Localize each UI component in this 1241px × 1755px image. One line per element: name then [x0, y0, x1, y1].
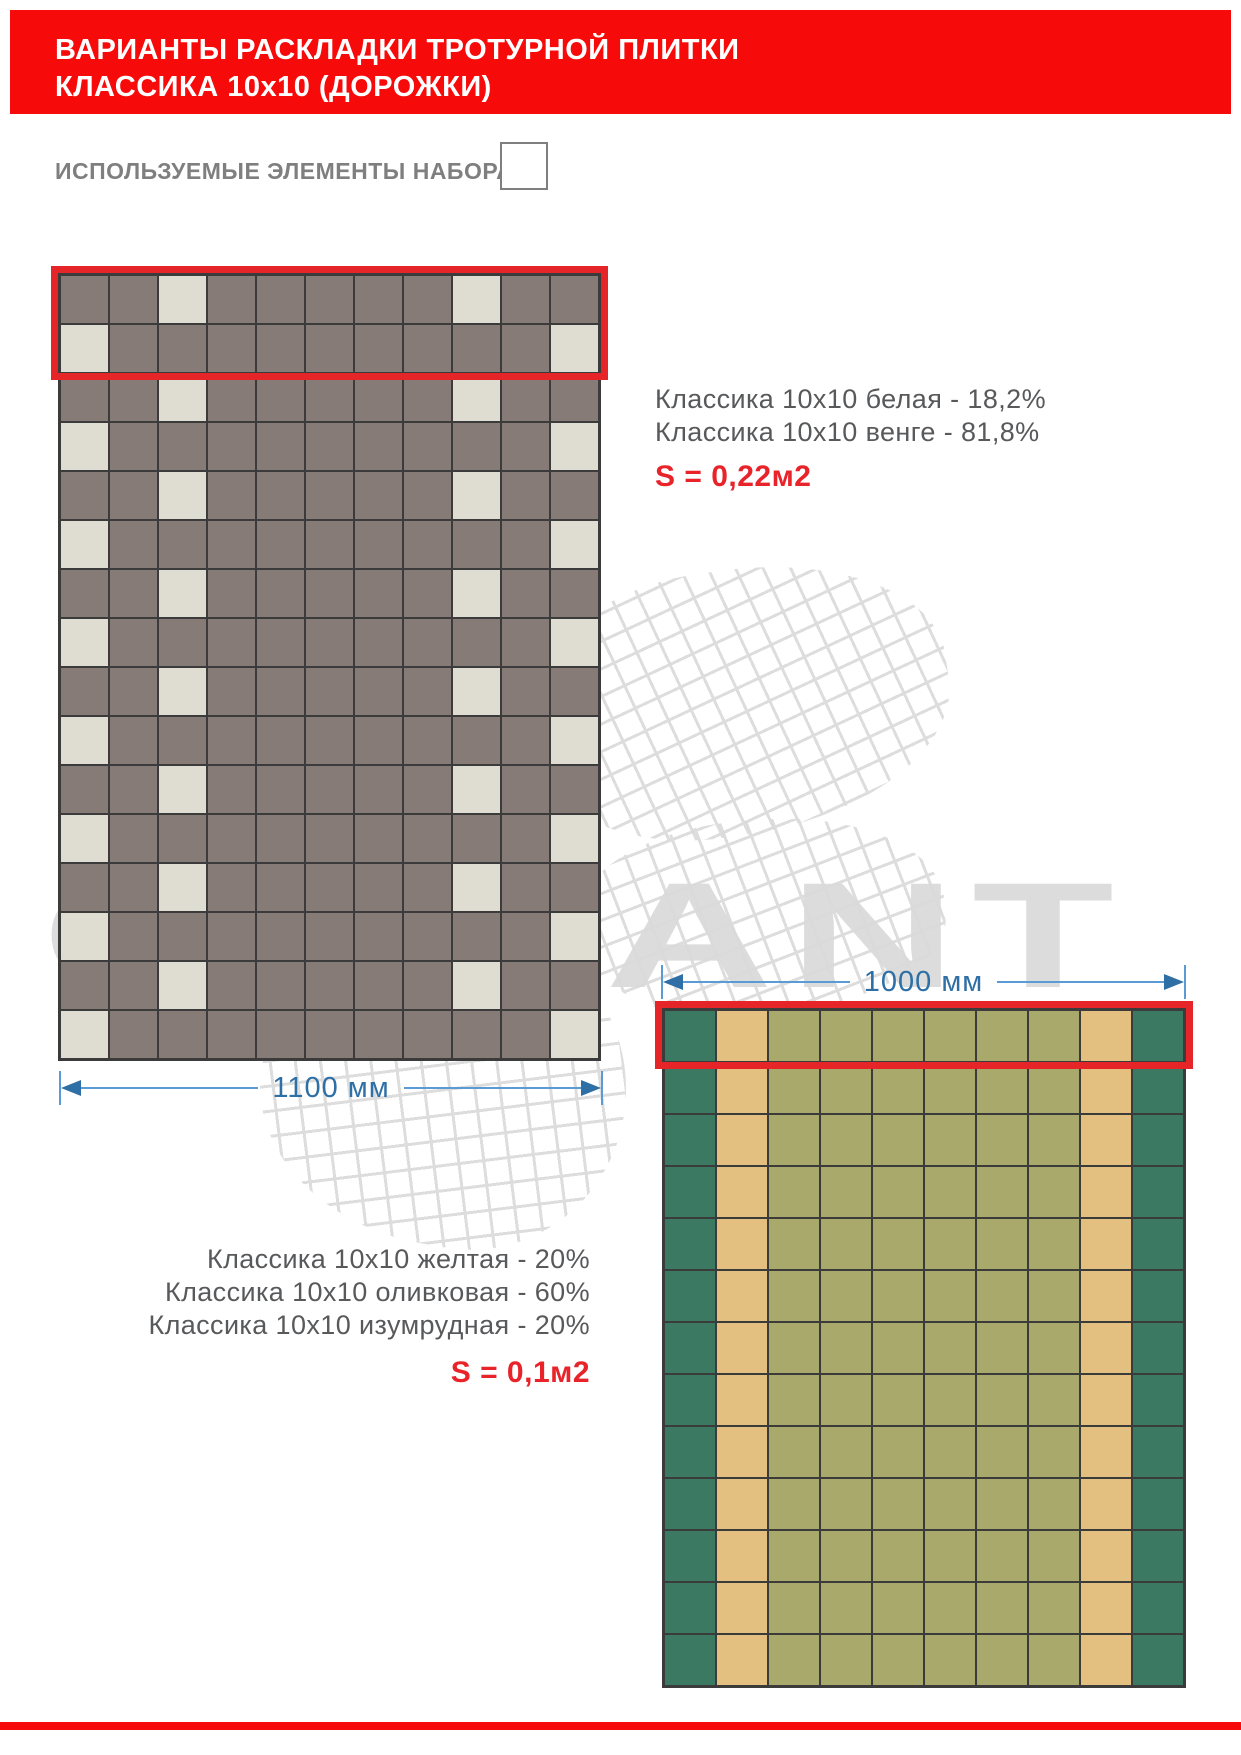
tile-оливковая: [872, 1270, 924, 1322]
dimension-tick-right: [601, 1071, 603, 1105]
tile-оливковая: [820, 1322, 872, 1374]
tile-желтая: [716, 1062, 768, 1114]
dimension-label: 1000 мм: [850, 966, 997, 999]
tile-венге: [501, 520, 550, 569]
tile-оливковая: [768, 1530, 820, 1582]
tile-изумрудная: [664, 1062, 716, 1114]
tile-венге: [501, 961, 550, 1010]
tile-венге: [305, 716, 354, 765]
tile-белая: [158, 961, 207, 1010]
tile-оливковая: [924, 1426, 976, 1478]
tile-оливковая: [820, 1166, 872, 1218]
tile-венге: [158, 716, 207, 765]
tile-венге: [452, 814, 501, 863]
tile-венге: [550, 667, 599, 716]
tile-венге: [550, 765, 599, 814]
tile-желтая: [716, 1634, 768, 1686]
dimension-line-right: [997, 981, 1164, 983]
tile-оливковая: [976, 1270, 1028, 1322]
tile-венге: [207, 814, 256, 863]
tile-венге: [60, 373, 109, 422]
tile-венге: [501, 765, 550, 814]
tile-венге: [501, 422, 550, 471]
tile-изумрудная: [664, 1218, 716, 1270]
tile-белая: [550, 716, 599, 765]
footer-bar: [0, 1722, 1241, 1730]
tile-желтая: [716, 1114, 768, 1166]
tile-венге: [354, 912, 403, 961]
tile-венге: [305, 1010, 354, 1059]
tile-изумрудная: [1132, 1478, 1184, 1530]
tile-венге: [501, 373, 550, 422]
tile-оливковая: [872, 1426, 924, 1478]
legend-line: Классика 10х10 венге - 81,8%: [655, 416, 1046, 449]
tile-оливковая: [1028, 1062, 1080, 1114]
tile-белая: [158, 765, 207, 814]
tile-венге: [354, 471, 403, 520]
tile-венге: [109, 716, 158, 765]
tile-изумрудная: [664, 1582, 716, 1634]
repeat-unit-highlight-1: [51, 266, 608, 380]
tile-оливковая: [820, 1426, 872, 1478]
tile-оливковая: [1028, 1322, 1080, 1374]
tile-венге: [452, 618, 501, 667]
tile-оливковая: [820, 1218, 872, 1270]
tile-оливковая: [1028, 1218, 1080, 1270]
tile-венге: [550, 471, 599, 520]
tile-венге: [305, 765, 354, 814]
tile-венге: [305, 863, 354, 912]
tile-белая: [60, 422, 109, 471]
tile-белая: [452, 765, 501, 814]
page-title-line2: КЛАССИКА 10х10 (ДОРОЖКИ): [55, 69, 1231, 106]
legend-variant-2: Классика 10х10 желтая - 20% Классика 10х…: [145, 1243, 590, 1389]
page-title-line1: ВАРИАНТЫ РАСКЛАДКИ ТРОТУРНОЙ ПЛИТКИ: [55, 32, 1231, 69]
tile-оливковая: [820, 1634, 872, 1686]
tile-белая: [452, 471, 501, 520]
catalog-page: ВАРИАНТЫ РАСКЛАДКИ ТРОТУРНОЙ ПЛИТКИ КЛАС…: [0, 0, 1241, 1755]
tile-венге: [207, 765, 256, 814]
tile-венге: [452, 520, 501, 569]
tile-венге: [207, 1010, 256, 1059]
tile-оливковая: [1028, 1374, 1080, 1426]
tile-изумрудная: [664, 1322, 716, 1374]
tile-венге: [256, 814, 305, 863]
tile-венге: [354, 863, 403, 912]
tile-венге: [207, 422, 256, 471]
tile-венге: [109, 471, 158, 520]
tile-изумрудная: [1132, 1634, 1184, 1686]
tile-венге: [305, 667, 354, 716]
tile-венге: [354, 569, 403, 618]
tile-оливковая: [924, 1634, 976, 1686]
tile-оливковая: [872, 1530, 924, 1582]
tile-оливковая: [872, 1582, 924, 1634]
tile-венге: [109, 569, 158, 618]
tile-желтая: [716, 1322, 768, 1374]
tile-оливковая: [924, 1322, 976, 1374]
dimension-label: 1100 мм: [258, 1072, 403, 1105]
tile-венге: [501, 814, 550, 863]
tile-оливковая: [768, 1166, 820, 1218]
tile-венге: [109, 765, 158, 814]
element-swatch-square: [500, 142, 548, 190]
tile-венге: [501, 1010, 550, 1059]
tile-белая: [60, 912, 109, 961]
tile-венге: [109, 667, 158, 716]
tile-оливковая: [768, 1322, 820, 1374]
tile-желтая: [1080, 1374, 1132, 1426]
tile-оливковая: [768, 1270, 820, 1322]
tile-венге: [207, 373, 256, 422]
tile-венге: [305, 912, 354, 961]
tile-венге: [109, 373, 158, 422]
tile-изумрудная: [664, 1374, 716, 1426]
tile-венге: [550, 863, 599, 912]
tile-оливковая: [1028, 1426, 1080, 1478]
tile-оливковая: [820, 1374, 872, 1426]
tile-венге: [452, 422, 501, 471]
tile-желтая: [1080, 1478, 1132, 1530]
tile-венге: [256, 961, 305, 1010]
tile-венге: [256, 471, 305, 520]
tile-оливковая: [924, 1270, 976, 1322]
tile-венге: [501, 618, 550, 667]
tile-оливковая: [1028, 1634, 1080, 1686]
tile-оливковая: [820, 1478, 872, 1530]
tile-венге: [109, 422, 158, 471]
tile-оливковая: [872, 1218, 924, 1270]
dimension-arrow-left-icon: [61, 1080, 81, 1096]
tile-венге: [403, 373, 452, 422]
tile-венге: [403, 520, 452, 569]
tile-венге: [501, 667, 550, 716]
tile-оливковая: [976, 1166, 1028, 1218]
tile-оливковая: [976, 1374, 1028, 1426]
tile-белая: [452, 863, 501, 912]
tile-венге: [354, 422, 403, 471]
tile-grid-olive-emerald: [662, 1008, 1186, 1688]
elements-set-label: ИСПОЛЬЗУЕМЫЕ ЭЛЕМЕНТЫ НАБОРА: [55, 158, 513, 185]
tile-венге: [403, 618, 452, 667]
tile-оливковая: [768, 1582, 820, 1634]
tile-оливковая: [924, 1062, 976, 1114]
tile-оливковая: [820, 1530, 872, 1582]
repeat-unit-highlight-2: [655, 1001, 1193, 1069]
tile-белая: [158, 863, 207, 912]
tile-венге: [256, 765, 305, 814]
dimension-tick-right: [1184, 965, 1186, 999]
tile-венге: [207, 569, 256, 618]
tile-венге: [305, 422, 354, 471]
tile-оливковая: [1028, 1114, 1080, 1166]
tile-оливковая: [924, 1582, 976, 1634]
tile-венге: [354, 520, 403, 569]
tile-венге: [207, 520, 256, 569]
tile-венге: [207, 912, 256, 961]
tile-оливковая: [768, 1218, 820, 1270]
tile-изумрудная: [664, 1478, 716, 1530]
tile-венге: [109, 520, 158, 569]
tile-изумрудная: [664, 1270, 716, 1322]
tile-оливковая: [768, 1062, 820, 1114]
tile-венге: [109, 1010, 158, 1059]
area-label-variant-1: S = 0,22м2: [655, 460, 811, 494]
tile-венге: [354, 716, 403, 765]
tile-белая: [452, 373, 501, 422]
tile-желтая: [716, 1270, 768, 1322]
tile-желтая: [1080, 1218, 1132, 1270]
tile-оливковая: [872, 1114, 924, 1166]
tile-изумрудная: [664, 1114, 716, 1166]
tile-венге: [403, 1010, 452, 1059]
tile-оливковая: [976, 1530, 1028, 1582]
tile-венге: [550, 961, 599, 1010]
tile-венге: [256, 618, 305, 667]
tile-оливковая: [1028, 1530, 1080, 1582]
tile-венге: [109, 863, 158, 912]
tile-венге: [256, 373, 305, 422]
tile-белая: [550, 618, 599, 667]
tile-оливковая: [768, 1634, 820, 1686]
tile-изумрудная: [664, 1166, 716, 1218]
tile-оливковая: [976, 1634, 1028, 1686]
tile-венге: [354, 667, 403, 716]
tile-оливковая: [976, 1322, 1028, 1374]
tile-венге: [60, 569, 109, 618]
tile-венге: [60, 961, 109, 1010]
tile-венге: [256, 863, 305, 912]
tile-венге: [305, 569, 354, 618]
tile-белая: [452, 961, 501, 1010]
tile-венге: [158, 814, 207, 863]
tile-изумрудная: [1132, 1426, 1184, 1478]
tile-оливковая: [1028, 1478, 1080, 1530]
tile-венге: [403, 961, 452, 1010]
tile-оливковая: [976, 1062, 1028, 1114]
tile-венге: [403, 814, 452, 863]
tile-венге: [158, 1010, 207, 1059]
tile-белая: [452, 667, 501, 716]
tile-венге: [60, 667, 109, 716]
tile-белая: [452, 569, 501, 618]
tile-желтая: [1080, 1426, 1132, 1478]
tile-венге: [207, 618, 256, 667]
tile-венге: [256, 716, 305, 765]
tile-желтая: [716, 1530, 768, 1582]
tile-венге: [207, 471, 256, 520]
tile-венге: [109, 961, 158, 1010]
tile-венге: [452, 716, 501, 765]
tile-венге: [501, 912, 550, 961]
tile-венге: [109, 912, 158, 961]
tile-оливковая: [976, 1478, 1028, 1530]
tile-изумрудная: [1132, 1114, 1184, 1166]
header-bar: ВАРИАНТЫ РАСКЛАДКИ ТРОТУРНОЙ ПЛИТКИ КЛАС…: [10, 10, 1231, 114]
tile-белая: [550, 520, 599, 569]
dimension-1100mm: 1100 мм: [59, 1070, 603, 1106]
tile-оливковая: [872, 1166, 924, 1218]
tile-венге: [501, 716, 550, 765]
tile-изумрудная: [1132, 1062, 1184, 1114]
tile-оливковая: [768, 1114, 820, 1166]
tile-белая: [60, 1010, 109, 1059]
tile-оливковая: [872, 1634, 924, 1686]
tile-оливковая: [768, 1426, 820, 1478]
tile-венге: [354, 373, 403, 422]
tile-изумрудная: [1132, 1374, 1184, 1426]
tile-оливковая: [872, 1478, 924, 1530]
tile-изумрудная: [664, 1426, 716, 1478]
tile-желтая: [1080, 1114, 1132, 1166]
tile-белая: [158, 667, 207, 716]
dimension-arrow-right-icon: [581, 1080, 601, 1096]
tile-венге: [207, 716, 256, 765]
tile-оливковая: [820, 1062, 872, 1114]
tile-белая: [550, 912, 599, 961]
tile-венге: [158, 422, 207, 471]
tile-оливковая: [872, 1322, 924, 1374]
tile-белая: [60, 618, 109, 667]
tile-оливковая: [820, 1582, 872, 1634]
tile-венге: [207, 667, 256, 716]
dimension-1000mm: 1000 мм: [661, 964, 1186, 1000]
dimension-arrow-right-icon: [1164, 974, 1184, 990]
tile-оливковая: [820, 1114, 872, 1166]
tile-белая: [550, 814, 599, 863]
tile-желтая: [716, 1218, 768, 1270]
tile-венге: [158, 618, 207, 667]
tile-оливковая: [1028, 1166, 1080, 1218]
tile-венге: [403, 912, 452, 961]
tile-венге: [550, 569, 599, 618]
tile-белая: [158, 373, 207, 422]
tile-grid-wenge-white: [58, 273, 601, 1061]
tile-оливковая: [924, 1166, 976, 1218]
tile-венге: [501, 863, 550, 912]
tile-желтая: [716, 1166, 768, 1218]
tile-венге: [550, 373, 599, 422]
tile-венге: [501, 569, 550, 618]
tile-оливковая: [872, 1374, 924, 1426]
tile-венге: [256, 520, 305, 569]
tile-оливковая: [872, 1062, 924, 1114]
tile-оливковая: [976, 1426, 1028, 1478]
tile-желтая: [1080, 1270, 1132, 1322]
tile-желтая: [716, 1582, 768, 1634]
tile-белая: [550, 1010, 599, 1059]
tile-венге: [207, 961, 256, 1010]
tile-венге: [403, 667, 452, 716]
tile-желтая: [1080, 1582, 1132, 1634]
tile-венге: [305, 373, 354, 422]
tile-оливковая: [976, 1582, 1028, 1634]
tile-оливковая: [924, 1374, 976, 1426]
tile-изумрудная: [664, 1634, 716, 1686]
tile-изумрудная: [1132, 1270, 1184, 1322]
tile-изумрудная: [1132, 1530, 1184, 1582]
tile-изумрудная: [1132, 1322, 1184, 1374]
legend-line: Классика 10х10 изумрудная - 20%: [145, 1309, 590, 1342]
tile-изумрудная: [1132, 1166, 1184, 1218]
area-label-variant-2: S = 0,1м2: [145, 1356, 590, 1389]
legend-line: Классика 10х10 желтая - 20%: [145, 1243, 590, 1276]
tile-оливковая: [768, 1374, 820, 1426]
tile-оливковая: [924, 1530, 976, 1582]
tile-венге: [256, 667, 305, 716]
tile-белая: [60, 814, 109, 863]
tile-венге: [403, 716, 452, 765]
tile-желтая: [1080, 1166, 1132, 1218]
tile-венге: [256, 1010, 305, 1059]
tile-оливковая: [768, 1478, 820, 1530]
dimension-line-right: [404, 1087, 581, 1089]
tile-венге: [354, 765, 403, 814]
tile-оливковая: [976, 1114, 1028, 1166]
tile-желтая: [1080, 1634, 1132, 1686]
tile-венге: [305, 471, 354, 520]
tile-желтая: [1080, 1062, 1132, 1114]
tile-белая: [60, 520, 109, 569]
tile-венге: [305, 814, 354, 863]
tile-венге: [256, 569, 305, 618]
tile-венге: [158, 520, 207, 569]
dimension-line-left: [81, 1087, 258, 1089]
tile-венге: [403, 765, 452, 814]
tile-венге: [305, 520, 354, 569]
tile-венге: [354, 618, 403, 667]
tile-венге: [305, 618, 354, 667]
tile-венге: [60, 863, 109, 912]
dimension-line-left: [683, 981, 850, 983]
tile-венге: [452, 912, 501, 961]
tile-венге: [403, 471, 452, 520]
tile-желтая: [716, 1426, 768, 1478]
tile-венге: [354, 814, 403, 863]
tile-желтая: [716, 1478, 768, 1530]
tile-венге: [109, 814, 158, 863]
tile-венге: [452, 1010, 501, 1059]
tile-белая: [550, 422, 599, 471]
dimension-arrow-left-icon: [663, 974, 683, 990]
tile-венге: [60, 765, 109, 814]
tile-венге: [207, 863, 256, 912]
tile-венге: [403, 569, 452, 618]
tile-венге: [501, 471, 550, 520]
tile-белая: [60, 716, 109, 765]
tile-венге: [109, 618, 158, 667]
tile-венге: [256, 912, 305, 961]
tile-оливковая: [924, 1218, 976, 1270]
tile-изумрудная: [1132, 1218, 1184, 1270]
tile-венге: [60, 471, 109, 520]
tile-венге: [305, 961, 354, 1010]
tile-оливковая: [1028, 1270, 1080, 1322]
legend-line: Классика 10х10 оливковая - 60%: [145, 1276, 590, 1309]
tile-белая: [158, 569, 207, 618]
tile-изумрудная: [664, 1530, 716, 1582]
tile-оливковая: [924, 1478, 976, 1530]
tile-венге: [403, 863, 452, 912]
tile-венге: [354, 1010, 403, 1059]
tile-оливковая: [976, 1218, 1028, 1270]
tile-венге: [354, 961, 403, 1010]
legend-line: Классика 10х10 белая - 18,2%: [655, 383, 1046, 416]
tile-желтая: [716, 1374, 768, 1426]
legend-variant-1: Классика 10х10 белая - 18,2% Классика 10…: [655, 383, 1046, 449]
tile-желтая: [1080, 1322, 1132, 1374]
tile-изумрудная: [1132, 1582, 1184, 1634]
